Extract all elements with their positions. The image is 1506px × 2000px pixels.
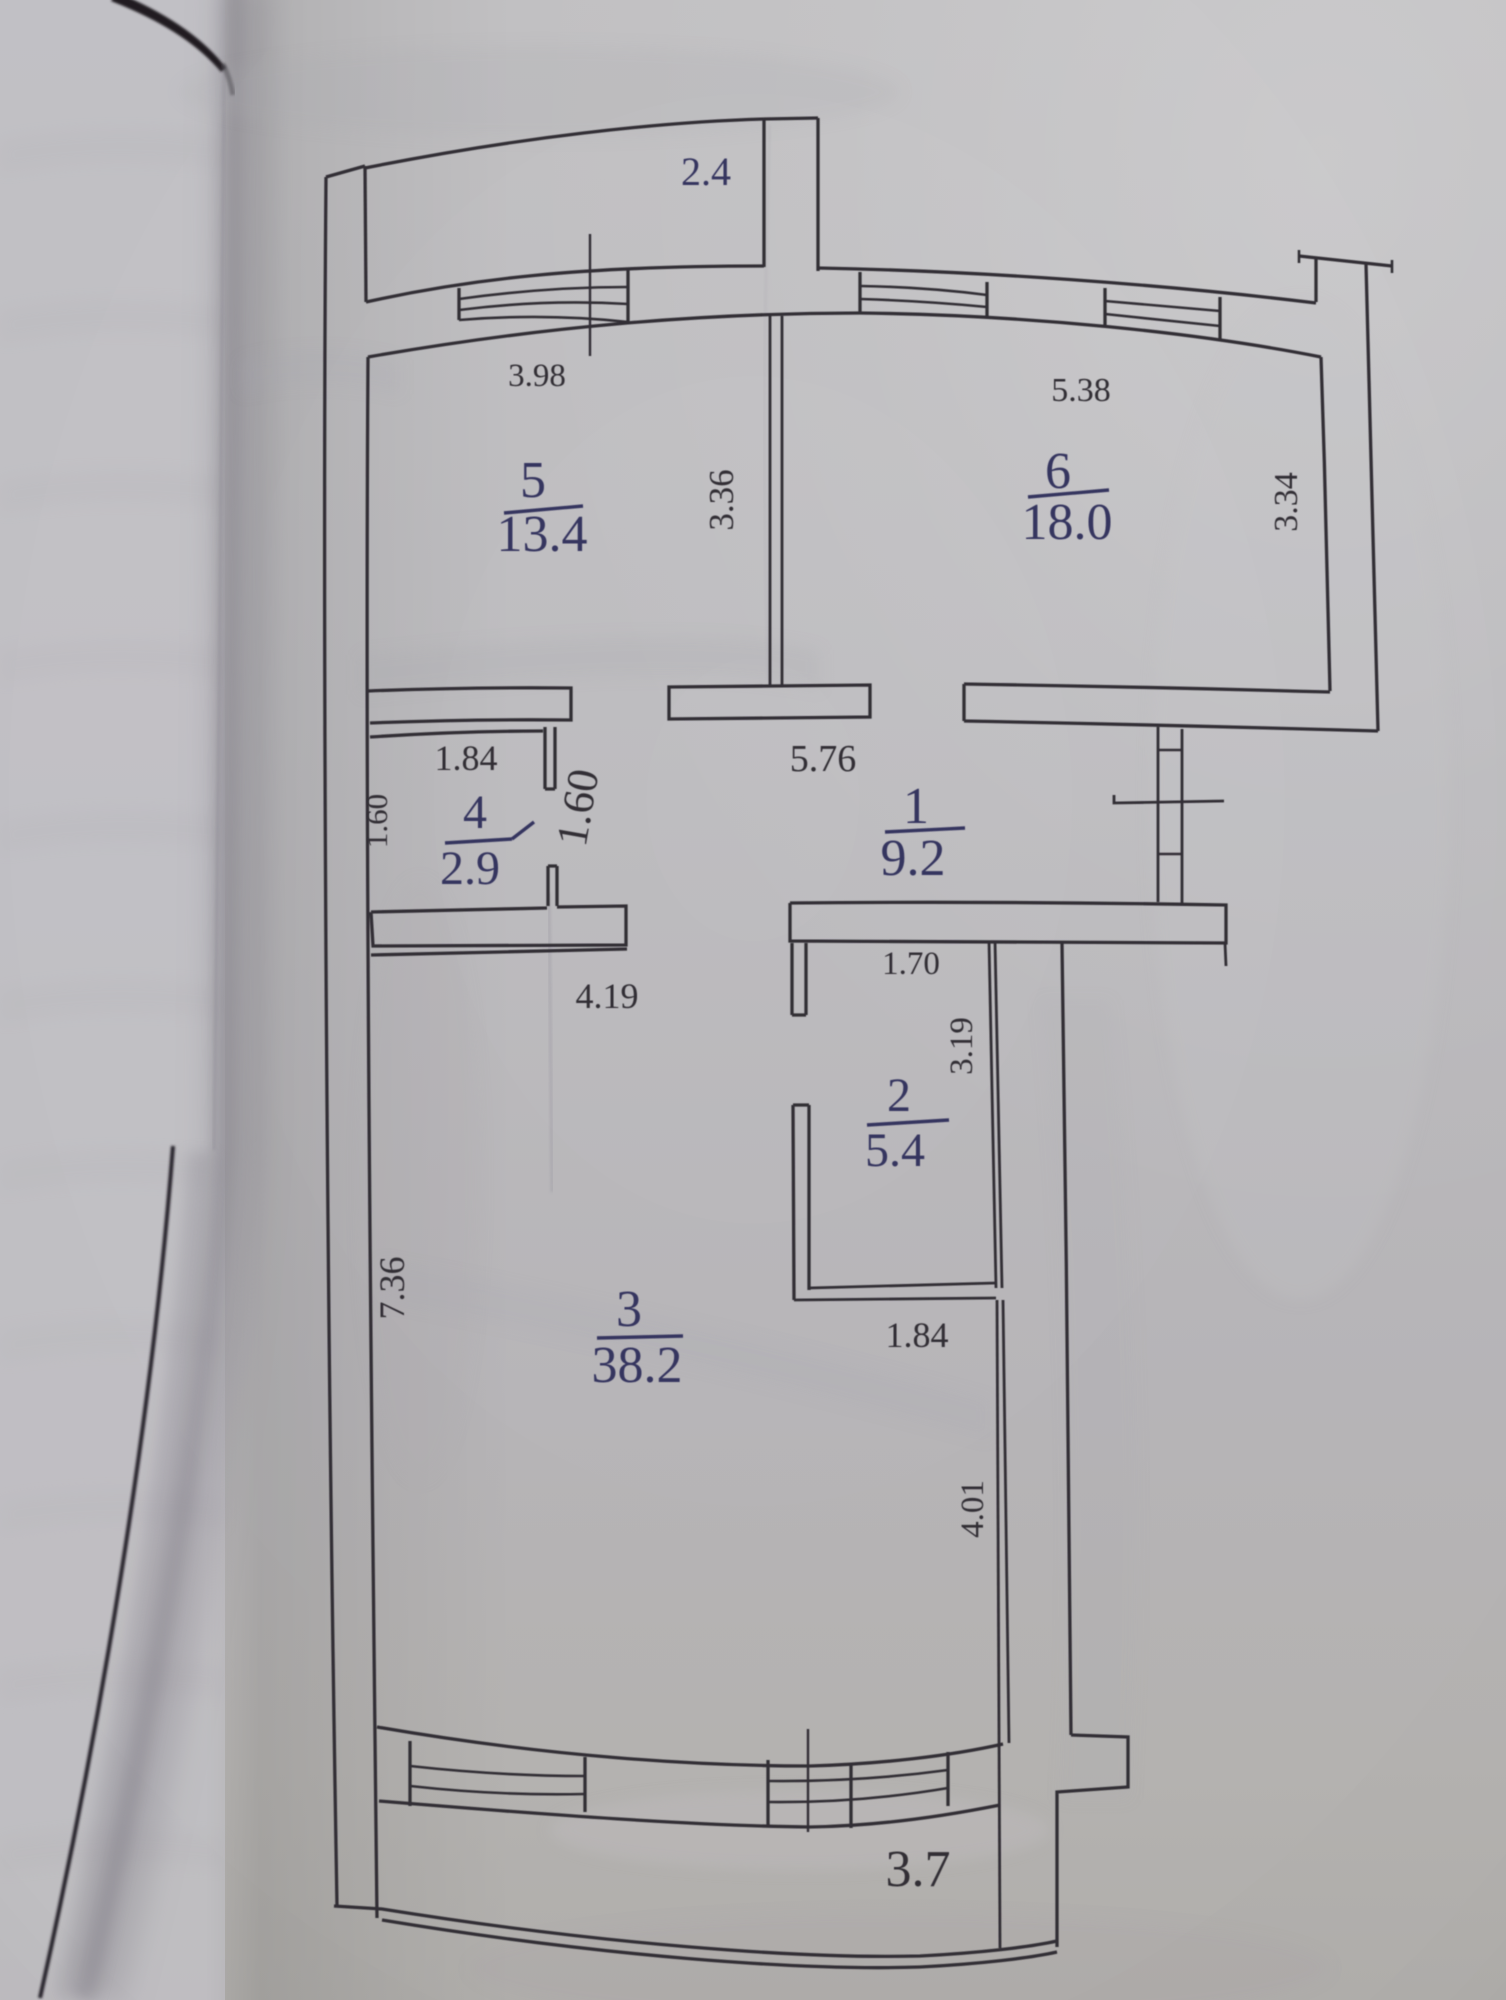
svg-text:3.7: 3.7	[886, 1841, 951, 1898]
svg-text:6: 6	[1045, 443, 1071, 500]
svg-text:9.2: 9.2	[881, 830, 946, 887]
svg-text:3: 3	[616, 1281, 642, 1338]
svg-text:1.60: 1.60	[359, 794, 394, 848]
svg-text:5.4: 5.4	[865, 1124, 925, 1177]
svg-text:7.36: 7.36	[372, 1257, 412, 1320]
svg-text:4.19: 4.19	[576, 976, 639, 1016]
svg-text:4: 4	[463, 786, 487, 839]
svg-text:1: 1	[903, 778, 929, 835]
svg-text:1.84: 1.84	[886, 1315, 949, 1355]
svg-text:5.76: 5.76	[790, 738, 857, 780]
svg-text:2.9: 2.9	[440, 842, 500, 895]
svg-text:4.01: 4.01	[955, 1480, 991, 1538]
svg-text:3.98: 3.98	[508, 358, 566, 394]
svg-text:1.84: 1.84	[435, 738, 498, 778]
svg-text:1.70: 1.70	[882, 946, 940, 982]
svg-text:5.38: 5.38	[1051, 372, 1111, 409]
svg-text:2: 2	[887, 1069, 911, 1122]
svg-text:2.4: 2.4	[681, 149, 731, 194]
svg-text:3.19: 3.19	[944, 1017, 980, 1075]
svg-text:5: 5	[520, 452, 546, 509]
svg-text:38.2: 38.2	[592, 1337, 683, 1394]
svg-text:13.4: 13.4	[497, 506, 588, 563]
svg-text:3.34: 3.34	[1268, 472, 1305, 532]
svg-text:18.0: 18.0	[1022, 494, 1113, 551]
svg-text:3.36: 3.36	[702, 469, 741, 530]
